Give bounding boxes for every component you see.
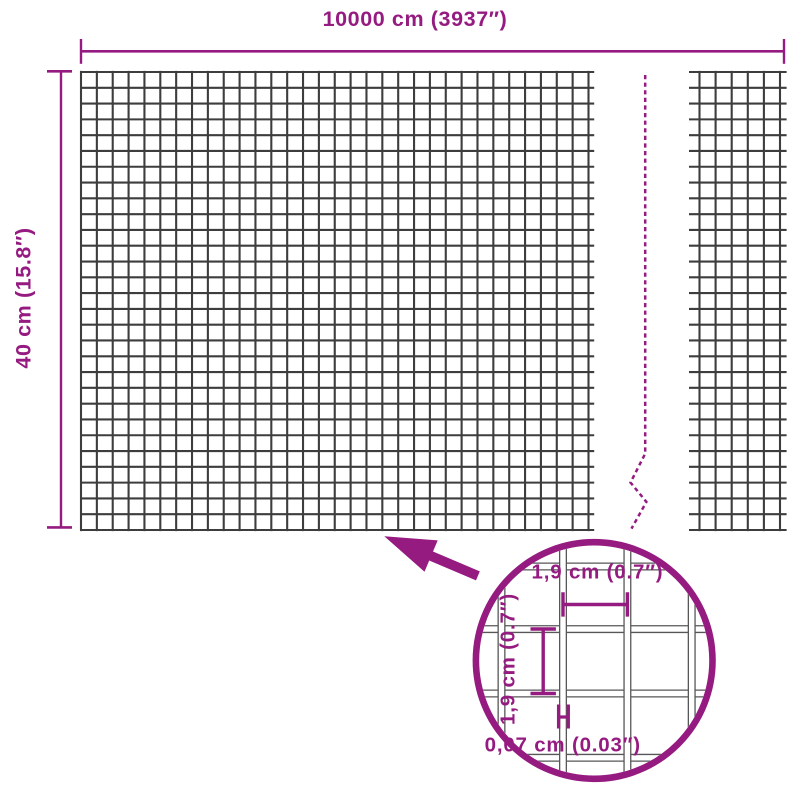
svg-text:1,9 cm (0.7″): 1,9 cm (0.7″): [532, 561, 664, 584]
svg-text:0,07 cm (0.03″): 0,07 cm (0.03″): [485, 733, 641, 756]
svg-text:40 cm (15.8″): 40 cm (15.8″): [12, 227, 36, 368]
svg-text:10000 cm (3937″): 10000 cm (3937″): [323, 7, 508, 31]
svg-text:1,9 cm (0.7″): 1,9 cm (0.7″): [497, 593, 520, 725]
